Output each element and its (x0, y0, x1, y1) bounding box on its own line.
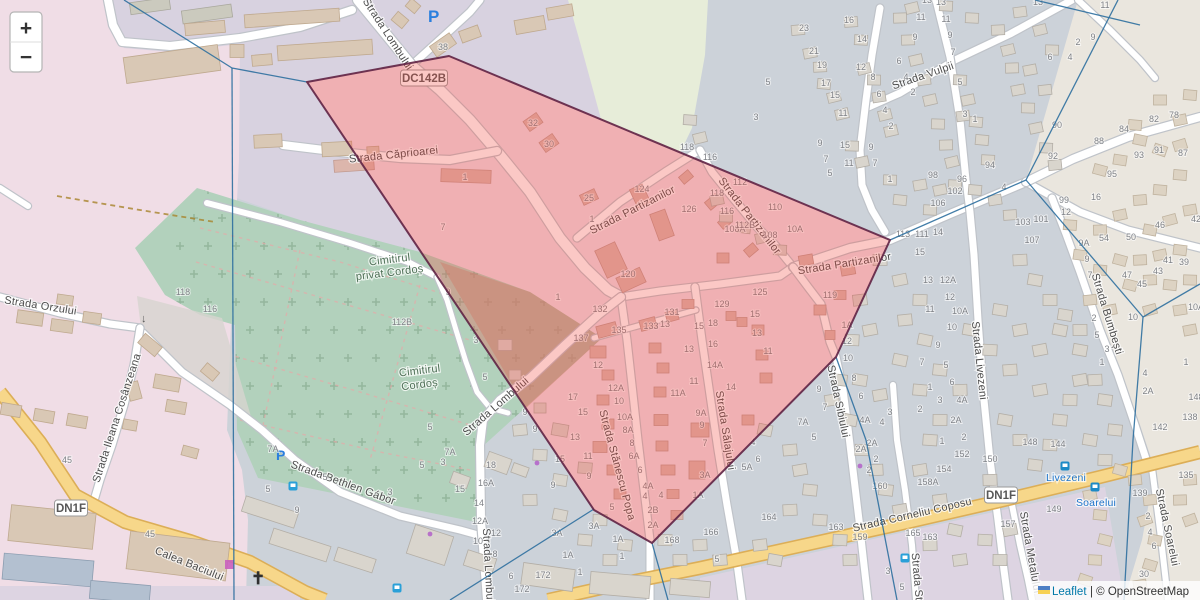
svg-text:1A: 1A (562, 550, 573, 560)
svg-text:9: 9 (868, 142, 873, 152)
svg-text:2: 2 (917, 404, 922, 414)
svg-text:6: 6 (896, 56, 901, 66)
svg-text:12A: 12A (472, 516, 488, 526)
svg-text:6: 6 (508, 571, 513, 581)
svg-text:163: 163 (828, 522, 843, 532)
svg-text:3: 3 (440, 457, 445, 467)
svg-text:9: 9 (816, 384, 821, 394)
svg-text:13: 13 (936, 0, 946, 7)
svg-text:7: 7 (823, 154, 828, 164)
svg-text:172: 172 (535, 570, 550, 580)
svg-text:15: 15 (830, 90, 840, 100)
svg-text:2: 2 (910, 87, 915, 97)
svg-text:5: 5 (899, 582, 904, 592)
svg-text:106: 106 (930, 198, 945, 208)
svg-text:165: 165 (905, 528, 920, 538)
svg-text:84: 84 (1119, 124, 1129, 134)
svg-text:91: 91 (1154, 145, 1164, 155)
svg-text:88: 88 (1094, 136, 1104, 146)
svg-text:13: 13 (922, 0, 932, 5)
svg-text:10A: 10A (952, 306, 968, 316)
svg-text:39: 39 (1179, 257, 1189, 267)
svg-text:1A: 1A (612, 534, 623, 544)
svg-text:3: 3 (753, 112, 758, 122)
svg-text:154: 154 (936, 464, 951, 474)
svg-text:135: 135 (1178, 470, 1193, 480)
svg-text:101: 101 (1033, 214, 1048, 224)
svg-text:116: 116 (203, 304, 217, 314)
svg-text:5: 5 (811, 432, 816, 442)
svg-text:−: − (20, 46, 32, 69)
svg-text:1: 1 (1183, 357, 1188, 367)
svg-text:139: 139 (1132, 488, 1147, 498)
svg-text:23: 23 (799, 23, 809, 33)
svg-text:6: 6 (858, 391, 863, 401)
svg-text:5: 5 (482, 372, 487, 382)
svg-text:6: 6 (1047, 52, 1052, 62)
svg-text:16: 16 (1091, 192, 1101, 202)
svg-text:✝: ✝ (251, 569, 265, 588)
svg-text:54: 54 (1099, 233, 1109, 243)
svg-text:Leaflet: Leaflet (1052, 586, 1087, 598)
svg-text:92: 92 (1048, 151, 1058, 161)
svg-text:1: 1 (577, 567, 582, 577)
svg-text:148: 148 (1188, 392, 1200, 402)
svg-text:45: 45 (1137, 279, 1147, 289)
svg-text:9: 9 (1090, 32, 1095, 42)
svg-text:14: 14 (933, 227, 943, 237)
svg-text:11: 11 (941, 14, 950, 24)
svg-text:9: 9 (947, 30, 952, 40)
svg-text:5: 5 (322, 472, 327, 482)
svg-text:4: 4 (1142, 368, 1147, 378)
svg-text:16: 16 (844, 15, 854, 25)
svg-text:15: 15 (455, 484, 465, 494)
svg-text:7A: 7A (444, 447, 455, 457)
svg-text:1: 1 (927, 382, 932, 392)
svg-text:38: 38 (438, 42, 448, 52)
svg-text:172: 172 (514, 584, 529, 594)
svg-text:3: 3 (937, 395, 942, 405)
svg-text:82: 82 (1149, 114, 1159, 124)
svg-text:1: 1 (972, 114, 977, 124)
svg-text:45: 45 (145, 529, 155, 539)
svg-text:1: 1 (939, 436, 944, 446)
svg-text:7A: 7A (267, 444, 278, 454)
svg-text:12: 12 (1061, 207, 1071, 217)
svg-text:2A: 2A (1142, 386, 1153, 396)
svg-text:168: 168 (664, 535, 679, 545)
svg-text:152: 152 (954, 449, 969, 459)
svg-text:150: 150 (982, 454, 997, 464)
svg-text:50: 50 (1126, 232, 1136, 242)
svg-text:13: 13 (923, 275, 933, 285)
svg-text:3: 3 (387, 487, 392, 497)
svg-text:157: 157 (1000, 519, 1015, 529)
svg-text:98: 98 (928, 170, 938, 180)
svg-text:99: 99 (1059, 195, 1069, 205)
svg-text:93: 93 (1134, 150, 1144, 160)
svg-text:95: 95 (1107, 169, 1117, 179)
svg-text:| © OpenStreetMap: | © OpenStreetMap (1090, 586, 1189, 598)
svg-text:2: 2 (873, 454, 878, 464)
svg-text:7: 7 (950, 47, 955, 57)
svg-text:9: 9 (550, 480, 555, 490)
svg-text:159: 159 (852, 532, 867, 542)
svg-text:11: 11 (844, 158, 853, 168)
svg-text:107: 107 (1024, 235, 1039, 245)
svg-text:6: 6 (876, 89, 881, 99)
svg-text:47: 47 (1122, 270, 1132, 280)
svg-text:41: 41 (1163, 255, 1173, 265)
svg-text:4: 4 (903, 72, 908, 82)
svg-text:103: 103 (1015, 217, 1030, 227)
svg-text:2A: 2A (866, 438, 877, 448)
svg-text:21: 21 (809, 46, 819, 56)
svg-text:5: 5 (419, 460, 424, 470)
svg-text:96: 96 (957, 174, 967, 184)
svg-text:5A: 5A (741, 462, 752, 472)
svg-text:43: 43 (1153, 266, 1163, 276)
svg-text:14: 14 (474, 498, 484, 508)
svg-text:138: 138 (1182, 412, 1197, 422)
svg-text:9: 9 (912, 32, 917, 42)
svg-text:142: 142 (1152, 422, 1167, 432)
svg-text:8: 8 (851, 373, 856, 383)
svg-text:2: 2 (961, 432, 966, 442)
svg-text:10A: 10A (1188, 302, 1200, 312)
svg-text:18: 18 (486, 460, 496, 470)
svg-text:4: 4 (1147, 527, 1152, 537)
svg-text:11: 11 (925, 304, 934, 314)
svg-text:4: 4 (879, 417, 884, 427)
svg-text:9: 9 (294, 505, 299, 515)
svg-text:12A: 12A (940, 275, 956, 285)
svg-text:19: 19 (817, 60, 827, 70)
svg-text:94: 94 (985, 160, 995, 170)
svg-text:5: 5 (765, 77, 770, 87)
svg-text:118: 118 (680, 142, 694, 152)
svg-text:P: P (428, 7, 439, 26)
svg-text:144: 144 (1050, 439, 1065, 449)
svg-text:2: 2 (1075, 37, 1080, 47)
svg-text:7: 7 (872, 158, 877, 168)
svg-text:Livezeni: Livezeni (1046, 472, 1086, 484)
svg-text:46: 46 (1155, 220, 1165, 230)
svg-text:4: 4 (1067, 52, 1072, 62)
svg-text:2: 2 (888, 121, 893, 131)
svg-text:6: 6 (755, 454, 760, 464)
svg-text:1: 1 (887, 174, 892, 184)
svg-text:148: 148 (1022, 437, 1037, 447)
svg-text:12: 12 (945, 292, 955, 302)
svg-text:2: 2 (1091, 313, 1096, 323)
svg-text:3: 3 (962, 109, 967, 119)
svg-text:112B: 112B (392, 317, 412, 327)
svg-text:8: 8 (870, 72, 875, 82)
svg-text:10: 10 (947, 322, 957, 332)
svg-text:78: 78 (1169, 110, 1179, 120)
svg-text:5: 5 (1094, 330, 1099, 340)
svg-text:15: 15 (915, 247, 925, 257)
svg-text:164: 164 (761, 512, 776, 522)
svg-text:2A: 2A (950, 415, 961, 425)
svg-text:102: 102 (947, 186, 962, 196)
svg-text:2: 2 (1145, 511, 1150, 521)
svg-text:87: 87 (1178, 148, 1188, 158)
svg-text:11: 11 (916, 12, 925, 22)
svg-text:158A: 158A (917, 477, 938, 487)
svg-text:15: 15 (840, 140, 850, 150)
svg-text:16A: 16A (478, 478, 494, 488)
svg-text:5: 5 (265, 484, 270, 494)
svg-text:DN1F: DN1F (56, 503, 86, 515)
svg-text:6: 6 (949, 377, 954, 387)
svg-text:5: 5 (827, 168, 832, 178)
svg-text:149: 149 (1046, 504, 1061, 514)
svg-text:10: 10 (1128, 312, 1138, 322)
svg-text:2A: 2A (855, 444, 866, 454)
svg-text:11: 11 (1100, 0, 1109, 10)
svg-text:3A: 3A (588, 521, 599, 531)
svg-text:8: 8 (492, 549, 497, 559)
svg-text:166: 166 (703, 527, 718, 537)
svg-text:4A: 4A (956, 395, 967, 405)
svg-text:10: 10 (473, 536, 483, 546)
svg-text:5: 5 (427, 422, 432, 432)
svg-text:↓: ↓ (141, 313, 147, 325)
svg-text:DN1F: DN1F (986, 490, 1016, 502)
svg-text:9: 9 (935, 340, 940, 350)
svg-text:6: 6 (1151, 541, 1156, 551)
svg-text:111: 111 (915, 229, 929, 239)
svg-text:+: + (20, 17, 32, 40)
svg-text:9: 9 (1084, 254, 1089, 264)
svg-text:5: 5 (714, 554, 719, 564)
svg-text:14: 14 (857, 34, 867, 44)
svg-text:7: 7 (919, 357, 924, 367)
svg-text:3: 3 (1104, 344, 1109, 354)
svg-text:3: 3 (885, 566, 890, 576)
svg-text:4: 4 (882, 105, 887, 115)
svg-text:9: 9 (817, 138, 822, 148)
svg-text:163: 163 (922, 532, 937, 542)
svg-text:10: 10 (843, 353, 853, 363)
svg-text:7: 7 (1087, 270, 1092, 280)
svg-text:12: 12 (856, 62, 866, 72)
svg-text:Soarelui: Soarelui (1076, 497, 1116, 509)
svg-text:4A: 4A (859, 415, 870, 425)
svg-text:116: 116 (703, 152, 717, 162)
svg-text:30: 30 (1139, 569, 1149, 579)
svg-text:7A: 7A (797, 417, 808, 427)
svg-text:1: 1 (619, 551, 624, 561)
svg-text:5: 5 (943, 360, 948, 370)
svg-text:11: 11 (838, 108, 847, 118)
svg-text:118: 118 (176, 287, 190, 297)
svg-text:12: 12 (491, 528, 501, 538)
svg-text:45: 45 (62, 455, 72, 465)
svg-text:1: 1 (1099, 357, 1104, 367)
svg-text:3: 3 (887, 407, 892, 417)
svg-text:5: 5 (957, 77, 962, 87)
svg-text:7: 7 (822, 402, 827, 412)
svg-text:17: 17 (821, 78, 831, 88)
svg-text:42: 42 (1191, 214, 1200, 224)
